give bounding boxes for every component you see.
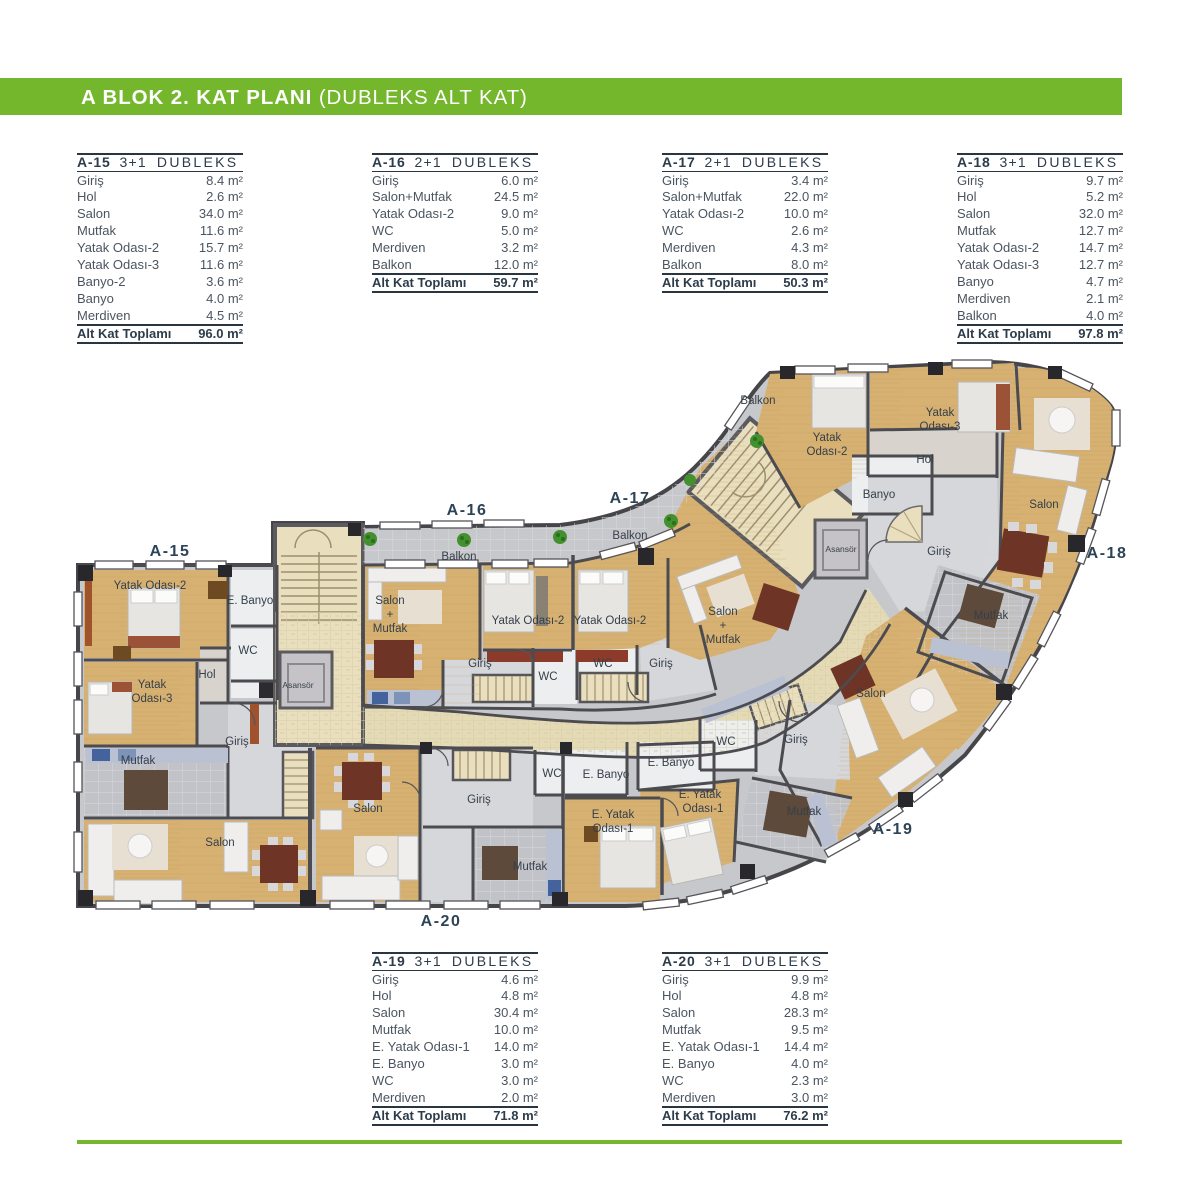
- svg-text:Salon: Salon: [205, 837, 234, 849]
- svg-text:E. Yatak: E. Yatak: [592, 809, 635, 821]
- svg-text:Yatak Odası-2: Yatak Odası-2: [574, 615, 647, 627]
- svg-text:Hol: Hol: [198, 669, 215, 681]
- svg-text:A-15: A-15: [150, 543, 191, 560]
- svg-text:Odası-3: Odası-3: [920, 421, 961, 433]
- svg-text:E. Banyo: E. Banyo: [227, 595, 274, 607]
- svg-text:Balkon: Balkon: [441, 551, 476, 563]
- svg-text:WC: WC: [538, 671, 557, 683]
- svg-text:WC: WC: [593, 658, 612, 670]
- svg-text:Asansör: Asansör: [282, 680, 313, 690]
- svg-text:E. Yatak: E. Yatak: [679, 789, 722, 801]
- svg-text:Yatak: Yatak: [926, 407, 955, 419]
- svg-text:Yatak Odası-2: Yatak Odası-2: [114, 580, 187, 592]
- svg-text:Mutfak: Mutfak: [706, 634, 741, 646]
- svg-text:WC: WC: [238, 645, 257, 657]
- svg-text:A-19: A-19: [873, 821, 914, 838]
- svg-text:Mutfak: Mutfak: [121, 755, 156, 767]
- svg-text:Mutfak: Mutfak: [787, 806, 822, 818]
- svg-text:WC: WC: [542, 768, 561, 780]
- svg-text:Salon: Salon: [375, 595, 404, 607]
- svg-text:Odası-3: Odası-3: [132, 693, 173, 705]
- svg-text:Balkon: Balkon: [612, 530, 647, 542]
- svg-text:Hol: Hol: [916, 454, 933, 466]
- svg-text:E. Banyo: E. Banyo: [583, 769, 630, 781]
- svg-text:Giriş: Giriş: [467, 794, 491, 806]
- svg-text:Giriş: Giriş: [225, 736, 249, 748]
- svg-text:Giriş: Giriş: [784, 734, 808, 746]
- svg-text:Asansör: Asansör: [825, 544, 856, 554]
- svg-text:Yatak: Yatak: [813, 432, 842, 444]
- svg-text:A-20: A-20: [421, 913, 462, 930]
- svg-text:Odası-1: Odası-1: [593, 823, 634, 835]
- svg-text:+: +: [387, 609, 394, 621]
- svg-text:Yatak: Yatak: [138, 679, 167, 691]
- svg-text:Mutfak: Mutfak: [974, 610, 1009, 622]
- svg-text:E. Banyo: E. Banyo: [648, 757, 695, 769]
- svg-text:+: +: [720, 620, 727, 632]
- svg-text:Giriş: Giriş: [468, 658, 492, 670]
- svg-text:WC: WC: [716, 736, 735, 748]
- svg-text:Salon: Salon: [708, 606, 737, 618]
- svg-text:Giriş: Giriş: [927, 546, 951, 558]
- svg-text:Mutfak: Mutfak: [373, 623, 408, 635]
- svg-text:A-18: A-18: [1087, 545, 1128, 562]
- svg-text:Balkon: Balkon: [740, 395, 775, 407]
- svg-text:Odası-1: Odası-1: [683, 803, 724, 815]
- svg-text:Giriş: Giriş: [649, 658, 673, 670]
- svg-text:Salon: Salon: [856, 688, 885, 700]
- svg-text:Odası-2: Odası-2: [807, 446, 848, 458]
- svg-text:Salon: Salon: [1029, 499, 1058, 511]
- svg-text:Salon: Salon: [353, 803, 382, 815]
- svg-text:A-17: A-17: [610, 490, 651, 507]
- svg-text:Banyo: Banyo: [863, 489, 896, 501]
- svg-text:Yatak Odası-2: Yatak Odası-2: [492, 615, 565, 627]
- svg-text:A-16: A-16: [447, 502, 488, 519]
- svg-text:Mutfak: Mutfak: [513, 861, 548, 873]
